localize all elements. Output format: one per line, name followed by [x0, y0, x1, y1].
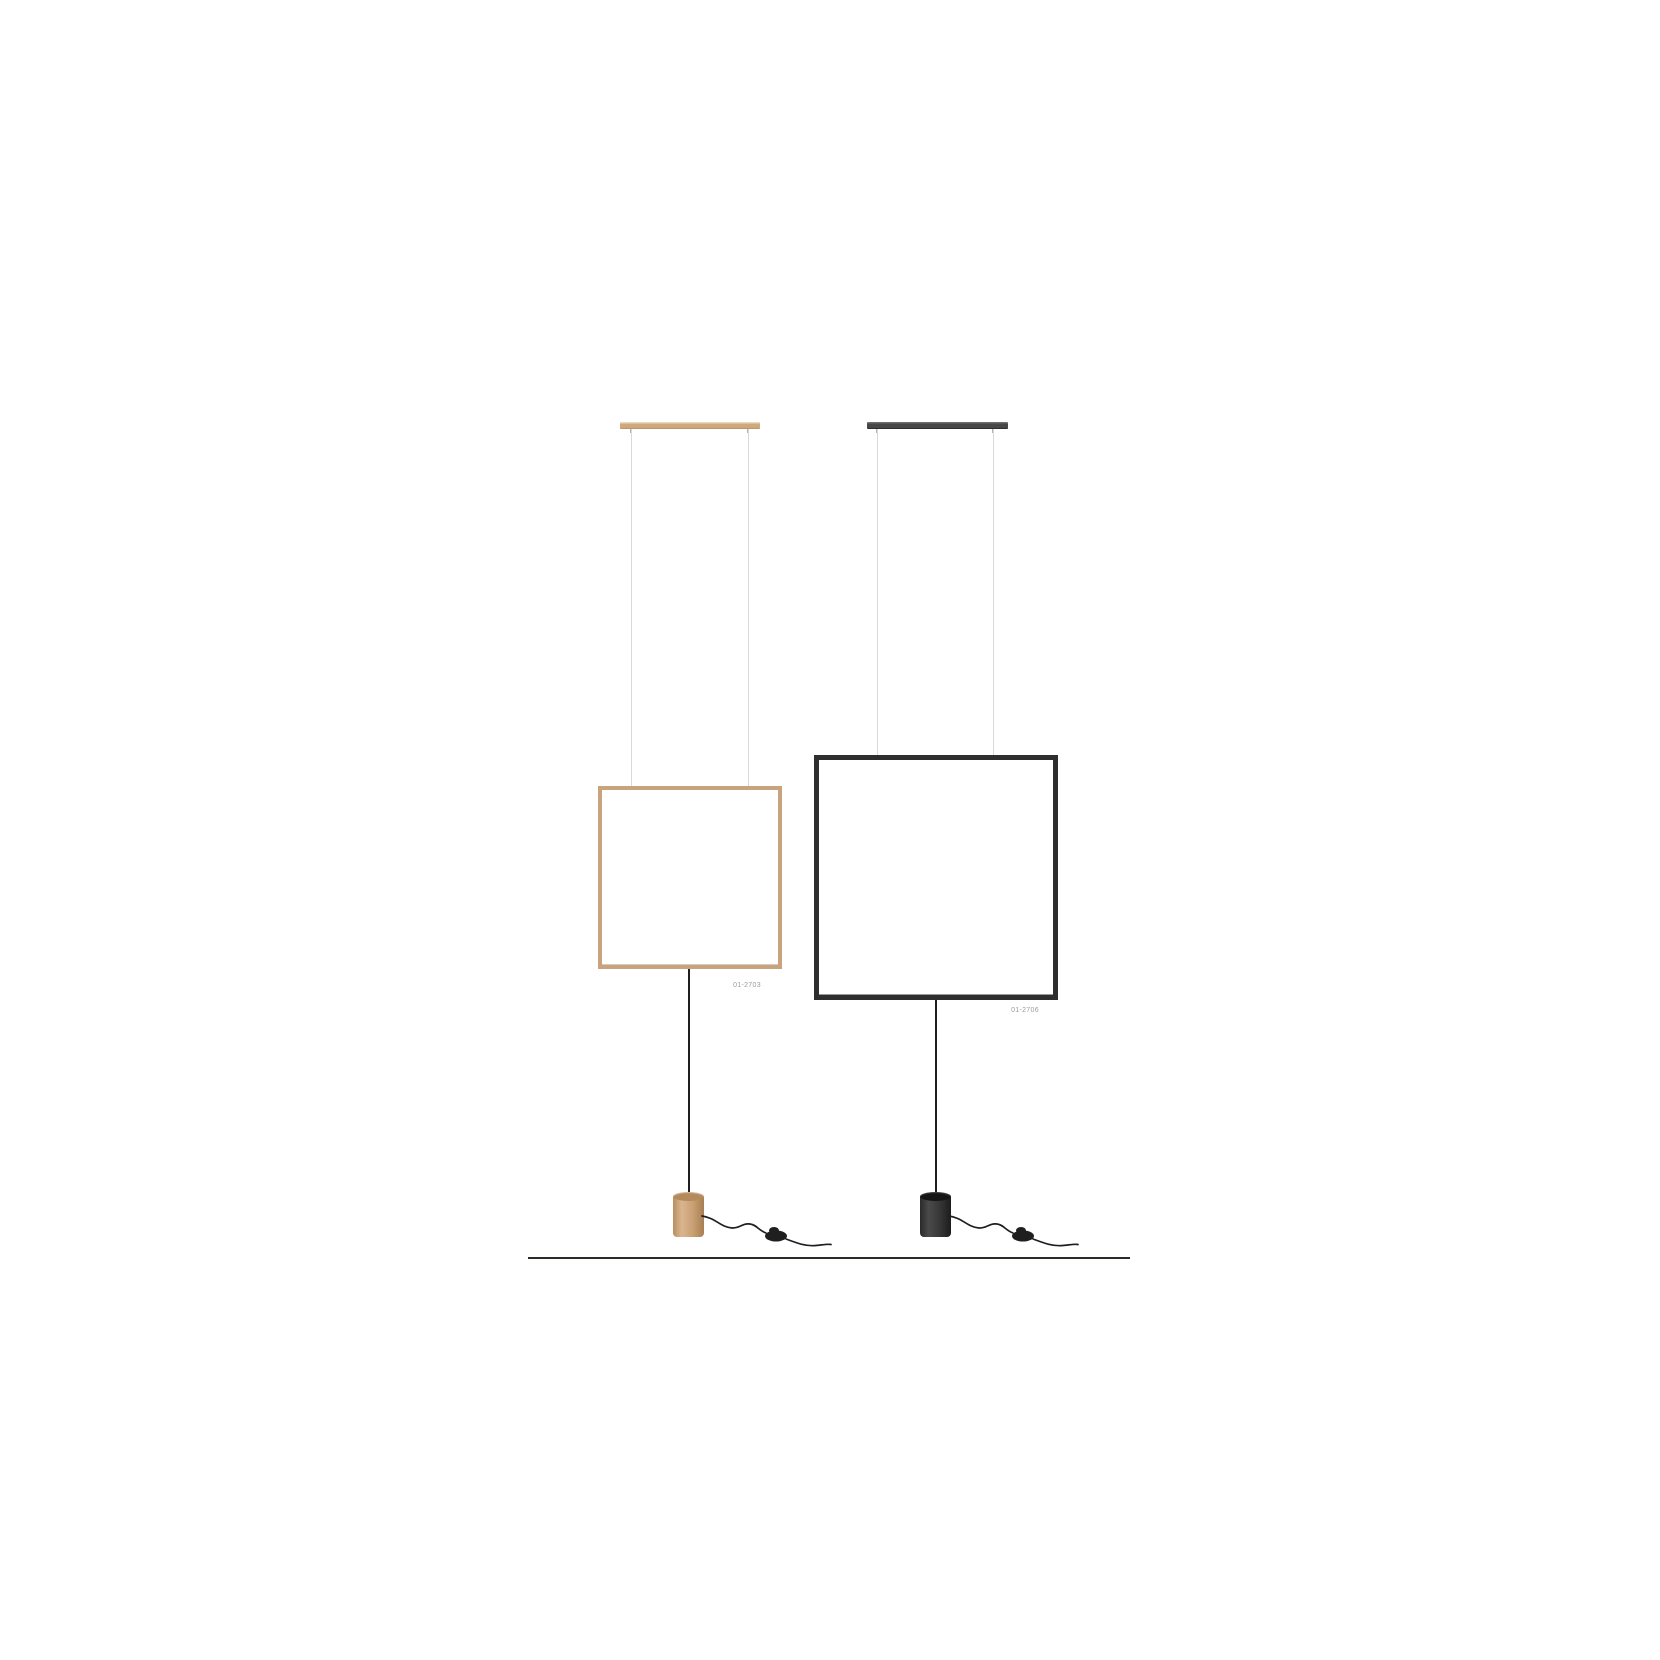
- square-light-frame: [598, 786, 782, 969]
- ceiling-bar: [867, 422, 1008, 429]
- model-code-label: 01-2706: [990, 1006, 1060, 1015]
- suspension-wire-left: [631, 429, 632, 786]
- square-light-frame: [814, 755, 1058, 1000]
- ceiling-bar: [620, 422, 760, 429]
- catalog-page: 01-2703 01-2706: [0, 0, 1660, 1660]
- drop-cord: [935, 1000, 937, 1198]
- suspension-wire-left: [877, 429, 878, 755]
- foot-switch-icon: [769, 1227, 779, 1234]
- model-code-label: 01-2703: [712, 981, 782, 990]
- power-cord: [700, 1210, 834, 1250]
- drop-cord: [688, 969, 690, 1198]
- suspension-wire-right: [748, 429, 749, 786]
- suspension-wire-right: [993, 429, 994, 755]
- base-top-cap: [673, 1192, 704, 1201]
- power-cord: [947, 1210, 1081, 1250]
- floor-line: [528, 1257, 1130, 1259]
- base-top-cap: [920, 1192, 951, 1201]
- foot-switch-icon: [1016, 1227, 1026, 1234]
